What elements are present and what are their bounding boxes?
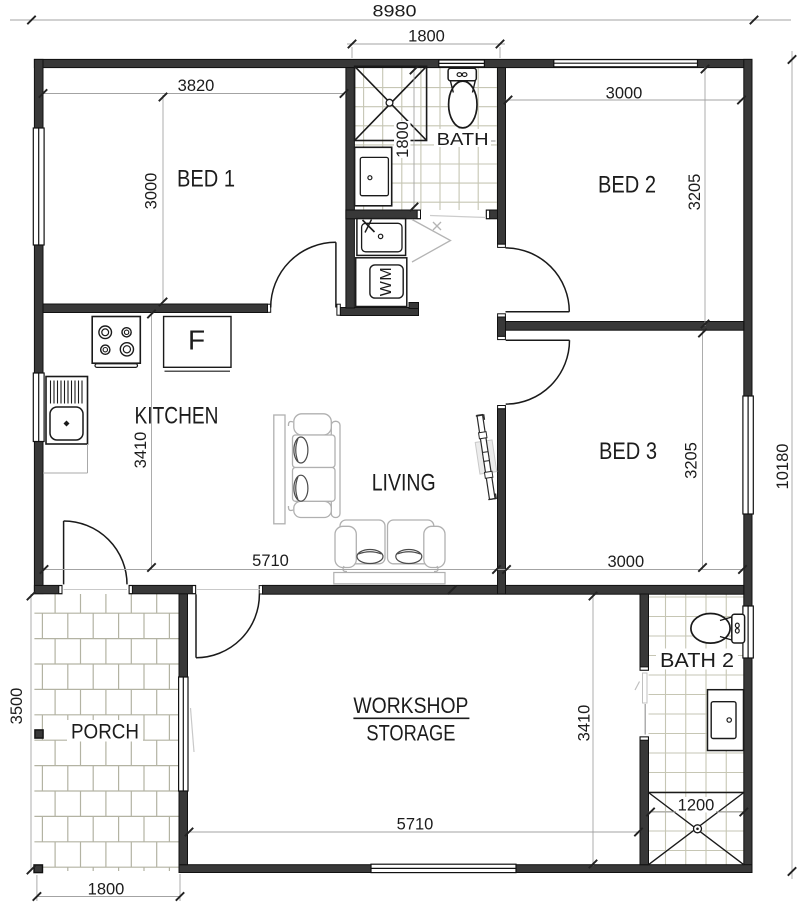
svg-text:3500: 3500	[8, 688, 26, 725]
svg-text:3410: 3410	[576, 705, 594, 742]
svg-text:BED 1: BED 1	[177, 166, 235, 193]
svg-text:WM: WM	[378, 267, 395, 296]
svg-text:BED 2: BED 2	[598, 172, 656, 199]
svg-text:WORKSHOP: WORKSHOP	[353, 693, 468, 718]
svg-text:8980: 8980	[373, 3, 417, 21]
svg-text:F: F	[188, 324, 205, 355]
svg-text:1200: 1200	[678, 797, 715, 815]
svg-text:1800: 1800	[88, 881, 125, 899]
svg-text:3205: 3205	[683, 442, 701, 479]
svg-text:1800: 1800	[408, 28, 445, 46]
svg-text:3205: 3205	[686, 174, 704, 211]
svg-text:KITCHEN: KITCHEN	[135, 403, 219, 430]
svg-text:3000: 3000	[607, 553, 644, 571]
svg-text:3820: 3820	[178, 77, 215, 95]
svg-text:5710: 5710	[397, 816, 434, 834]
svg-text:PORCH: PORCH	[71, 721, 139, 744]
svg-text:LIVING: LIVING	[372, 470, 436, 497]
svg-text:BATH: BATH	[437, 129, 489, 149]
svg-text:3000: 3000	[143, 173, 161, 210]
svg-text:BED 3: BED 3	[599, 438, 657, 465]
svg-text:3000: 3000	[606, 85, 643, 103]
svg-text:3410: 3410	[132, 432, 150, 469]
svg-text:5710: 5710	[252, 552, 289, 570]
svg-text:1800: 1800	[394, 121, 412, 158]
svg-text:STORAGE: STORAGE	[366, 721, 455, 746]
svg-text:10180: 10180	[774, 444, 792, 490]
svg-text:BATH 2: BATH 2	[660, 649, 734, 672]
